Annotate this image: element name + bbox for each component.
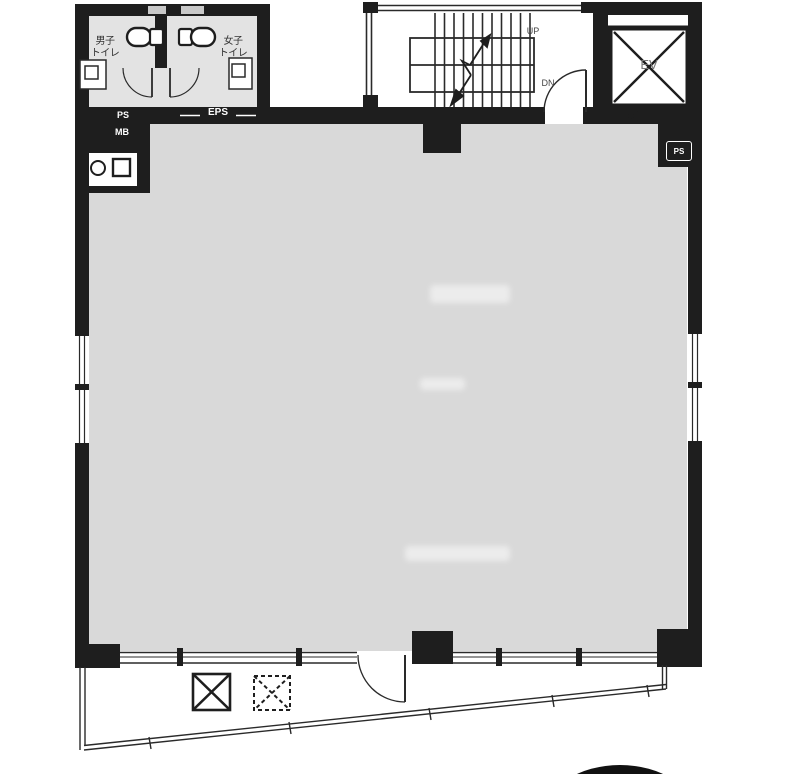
toilet-top-window — [148, 6, 166, 14]
bottom-window-band — [120, 653, 657, 664]
stairs-up-label: UP — [520, 27, 546, 36]
floor-plan: 男子 トイレ 女子 トイレ EPS PS MB UP DN EV PS — [0, 0, 787, 774]
sk-room-floor — [87, 153, 137, 186]
eps-label: EPS — [198, 108, 238, 119]
bottom-right-corner-wall — [657, 629, 702, 667]
sk-room-top-wall — [87, 148, 137, 153]
right-wall-window — [688, 331, 702, 443]
toilet-area-floor — [88, 16, 257, 107]
erased-text-artifact — [430, 285, 510, 303]
door-arc-icon — [544, 70, 586, 112]
elevator-top-wall — [593, 2, 702, 15]
column-marker-dashed-icon — [254, 676, 290, 710]
womens-toilet-label-line1: 女子 — [214, 37, 252, 48]
mens-toilet-label-line1: 男子 — [86, 37, 124, 48]
main-room-floor — [89, 124, 687, 651]
stairs-down-label: DN — [534, 79, 562, 88]
stair-east-wall — [593, 2, 608, 112]
bottom-left-corner-wall — [75, 644, 120, 668]
shaft-column-wall — [137, 107, 150, 193]
elevator-label: EV — [631, 58, 667, 72]
toilet-top-wall — [75, 4, 270, 16]
sk-room-bottom-wall — [87, 186, 137, 193]
left-wall-lower — [75, 445, 89, 667]
bottom-wall-pier — [412, 631, 453, 664]
black-ellipse-shape — [545, 765, 695, 774]
erased-text-artifact — [420, 378, 465, 390]
stair-treads-icon — [435, 13, 530, 107]
stair-direction-arrow-icon — [451, 35, 490, 105]
entrance-door-arc — [358, 655, 405, 702]
left-wall-window — [75, 333, 89, 445]
toilet-partition-wall — [155, 16, 167, 68]
toilet-top-window — [181, 6, 204, 14]
toilet-east-wall — [257, 4, 270, 114]
ps-shaft-label: PS — [110, 111, 136, 120]
mb-shaft-label: MB — [108, 128, 136, 137]
right-wall-ps-label: PS — [666, 141, 692, 161]
womens-toilet-label-line2: トイレ — [210, 49, 256, 60]
top-wall-pier — [423, 124, 461, 153]
property-line-icon — [80, 665, 667, 750]
erased-text-artifact — [405, 546, 510, 561]
mens-toilet-label-line2: トイレ — [82, 49, 128, 60]
stair-landing-outline — [410, 38, 534, 92]
column-marker-solid-icon — [193, 674, 230, 710]
